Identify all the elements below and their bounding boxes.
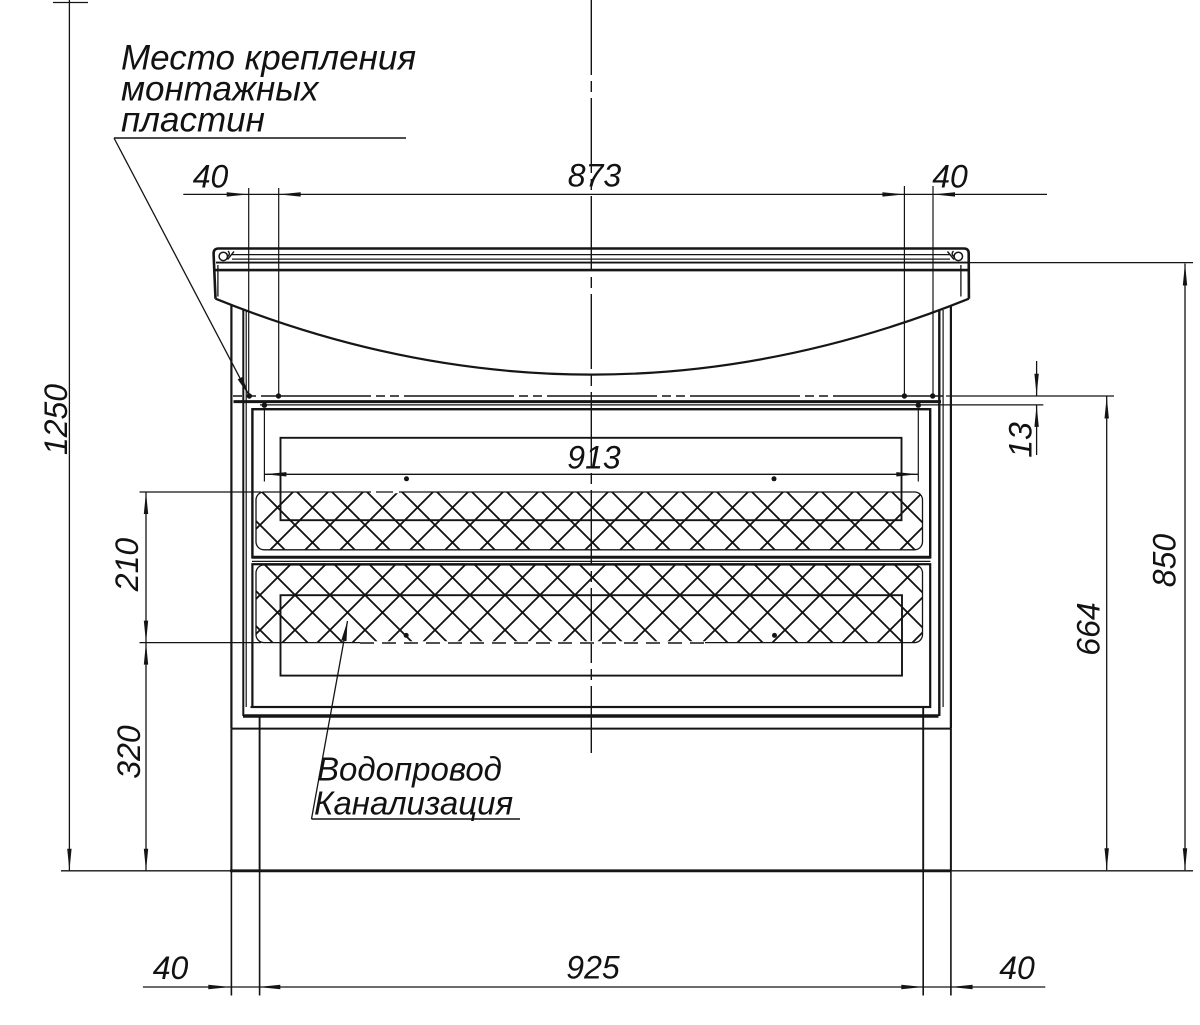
- svg-text:1250: 1250: [38, 384, 74, 455]
- svg-text:873: 873: [568, 158, 622, 194]
- svg-text:210: 210: [109, 538, 145, 593]
- svg-text:40: 40: [193, 159, 229, 195]
- svg-text:40: 40: [153, 950, 189, 986]
- svg-text:40: 40: [932, 159, 968, 195]
- svg-text:пластин: пластин: [121, 101, 265, 140]
- svg-text:320: 320: [111, 725, 147, 779]
- svg-text:Канализация: Канализация: [314, 785, 513, 822]
- svg-text:664: 664: [1071, 602, 1107, 655]
- svg-text:13: 13: [1003, 422, 1039, 458]
- svg-text:40: 40: [999, 950, 1035, 986]
- svg-text:925: 925: [566, 950, 620, 986]
- svg-text:Водопровод: Водопровод: [317, 751, 502, 788]
- svg-text:850: 850: [1147, 534, 1183, 588]
- svg-text:913: 913: [567, 440, 621, 476]
